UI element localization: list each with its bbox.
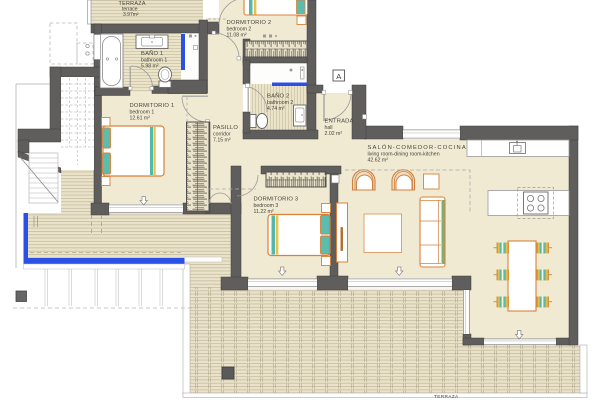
svg-text:42.62 m²: 42.62 m²	[368, 158, 389, 164]
svg-text:7.15 m²: 7.15 m²	[213, 138, 231, 144]
svg-text:SALÓN-COMEDOR-COCINA: SALÓN-COMEDOR-COCINA	[368, 144, 467, 151]
svg-text:PASILLO: PASILLO	[213, 125, 238, 131]
svg-text:11.08 m²: 11.08 m²	[227, 33, 247, 39]
svg-text:3.97m²: 3.97m²	[123, 12, 139, 18]
svg-text:DORMITORIO 2: DORMITORIO 2	[227, 20, 272, 26]
svg-text:DORMITORIO 1: DORMITORIO 1	[130, 103, 175, 109]
svg-text:5.98 m²: 5.98 m²	[141, 64, 159, 70]
svg-text:BAÑO 2: BAÑO 2	[267, 93, 289, 100]
svg-text:11.22 m²: 11.22 m²	[254, 209, 274, 215]
svg-text:12.61 m²: 12.61 m²	[130, 116, 151, 122]
svg-text:ENTRADA: ENTRADA	[325, 119, 354, 125]
svg-text:2.02 m²: 2.02 m²	[325, 131, 343, 137]
svg-text:TERRAZA: TERRAZA	[434, 394, 459, 400]
svg-text:A: A	[336, 72, 341, 81]
svg-text:4.74 m²: 4.74 m²	[267, 106, 285, 112]
svg-text:BAÑO 1: BAÑO 1	[141, 50, 163, 57]
svg-text:DORMITORIO 3: DORMITORIO 3	[254, 197, 299, 203]
